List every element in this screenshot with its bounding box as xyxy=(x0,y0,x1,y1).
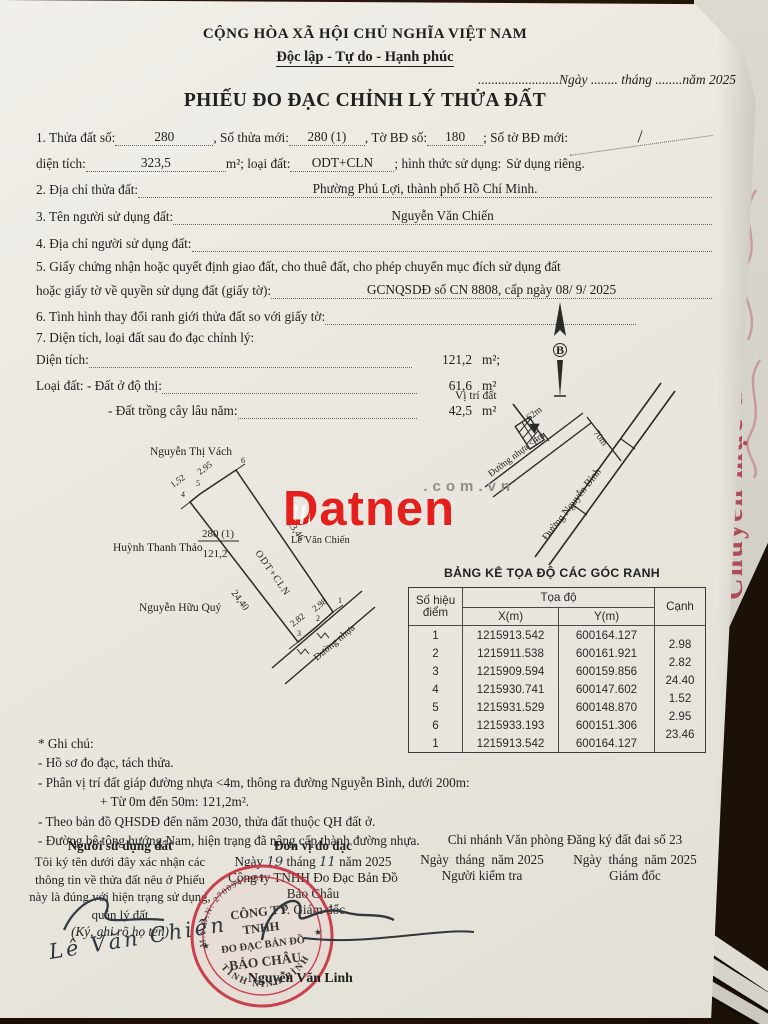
land-user-title: Người sử dụng đất xyxy=(28,838,212,854)
parcel-address-label: 2. Địa chỉ thửa đất: xyxy=(36,182,138,198)
road1-label: Đường nhựa <4m xyxy=(487,430,548,479)
usage-form-value: Sử dụng riêng. xyxy=(501,156,585,172)
map-sheet-value: 180 xyxy=(427,128,483,146)
land-type-label: m²; loại đất: xyxy=(226,156,291,172)
table-row-y: 600164.127 xyxy=(559,626,655,644)
table-row-x: 1215930.741 xyxy=(463,680,559,698)
director-signature xyxy=(246,884,481,974)
neighbor-top: Nguyễn Thị Vách xyxy=(150,445,232,458)
signature-col-inspector: Ngày tháng năm 2025 Người kiểm tra xyxy=(412,852,552,884)
column-header-x: X(m) xyxy=(463,608,559,626)
stamp-signer-name: Nguyễn Văn Linh xyxy=(248,970,353,986)
land-type-value: ODT+CLN xyxy=(290,154,394,172)
parcel-number-value: 280 xyxy=(115,128,213,146)
date-line: ........................Ngày ........ th… xyxy=(478,72,736,88)
national-motto: Độc lập - Tự do - Hạnh phúc xyxy=(0,49,730,66)
area-after-label: Diện tích: xyxy=(36,352,89,368)
table-row-x: 1215913.542 xyxy=(463,734,559,752)
map-sheet-label: , Tờ BĐ số: xyxy=(365,130,427,146)
boundary-change-label: 6. Tình hình thay đổi ranh giới thửa đất… xyxy=(36,309,325,325)
note-line: - Theo bản đồ QHSDĐ đến năm 2030, thửa đ… xyxy=(38,812,470,831)
parcel-number: 280 (1) xyxy=(202,528,234,540)
parcel-number-label: 1. Thửa đất số: xyxy=(36,130,115,146)
table-row-y: 600161.921 xyxy=(559,644,655,662)
new-parcel-label: , Số thửa mới: xyxy=(213,130,289,146)
area-after-dots xyxy=(89,350,412,368)
location-label: Vị trí đất xyxy=(455,389,497,402)
new-map-sheet-label: ; Số tờ BĐ mới: xyxy=(483,130,568,146)
table-row-point: 3 xyxy=(409,662,463,680)
table-row-point: 4 xyxy=(409,680,463,698)
director-date: Ngày tháng năm 2025 xyxy=(560,852,710,868)
field-row-area: diện tích: 323,5 m²; loại đất: ODT+CLN ;… xyxy=(36,154,712,172)
field-row-certificate-2: hoặc giấy tờ về quyền sử dụng đất (giấy … xyxy=(36,281,712,299)
parcel-address-value: Phường Phú Lợi, thành phố Hồ Chí Minh. xyxy=(138,180,712,198)
registry-office-header: Chi nhánh Văn phòng Đăng ký đất đai số 2… xyxy=(410,832,720,848)
svg-text:B: B xyxy=(556,343,564,357)
new-map-sheet-value: / xyxy=(568,118,713,156)
note-line: + Từ 0m đến 50m: 121,2m². xyxy=(38,792,470,811)
vertex-2: 2 xyxy=(316,614,320,623)
edge-length: 24.40 xyxy=(665,671,694,689)
vertex-4: 4 xyxy=(181,490,185,499)
perennial-land-dots xyxy=(238,401,417,419)
usage-form-label: ; hình thức sử dụng: xyxy=(394,156,501,172)
edge-top-1: 1,52 xyxy=(168,472,187,489)
note-line: - Phân vị trí đất giáp đường nhựa <4m, t… xyxy=(38,773,470,792)
table-row-x: 1215933.193 xyxy=(463,716,559,734)
inspector-date: Ngày tháng năm 2025 xyxy=(412,852,552,868)
table-row-x: 1215913.542 xyxy=(463,626,559,644)
parcel-area: 121,2 xyxy=(203,548,228,560)
certificate-label-line2: hoặc giấy tờ về quyền sử dụng đất (giấy … xyxy=(36,283,271,299)
signature-col-director: Ngày tháng năm 2025 Giám đốc xyxy=(560,852,710,884)
coordinate-table: Số hiệuđiểm Tọa độ Cạnh X(m) Y(m) 1 1215… xyxy=(408,587,706,753)
certificate-label-line1: 5. Giấy chứng nhận hoặc quyết định giao … xyxy=(36,259,561,275)
document-title: PHIẾU ĐO ĐẠC CHỈNH LÝ THỬA ĐẤT xyxy=(0,90,730,112)
dim-62m: 62m xyxy=(525,405,545,424)
field-row-after-measure: 7. Diện tích, loại đất sau đo đạc chỉnh … xyxy=(36,330,712,346)
field-row-owner-address: 4. Địa chỉ người sử dụng đất: xyxy=(36,234,712,252)
area-after-value: 121,2 xyxy=(412,352,472,368)
edge-bottom-1: 2,82 xyxy=(288,611,307,629)
vertex-6: 6 xyxy=(241,456,245,465)
coordinate-table-title: BẢNG KÊ TỌA ĐỘ CÁC GÓC RANH xyxy=(404,566,700,580)
notes-block: * Ghi chú: - Hồ sơ đo đạc, tách thửa. - … xyxy=(38,734,470,850)
inspector-role: Người kiểm tra xyxy=(412,868,552,884)
table-row-x: 1215931.529 xyxy=(463,698,559,716)
column-header-edge: Cạnh xyxy=(655,588,705,626)
national-title: CỘNG HÒA XÃ HỘI CHỦ NGHĨA VIỆT NAM xyxy=(0,26,730,43)
urban-land-label: Loại đất: - Đất ở độ thị: xyxy=(36,378,162,394)
field-row-address: 2. Địa chỉ thửa đất: Phường Phú Lợi, thà… xyxy=(36,180,712,198)
edge-length: 2.95 xyxy=(669,707,692,725)
survey-unit-title: Đơn vị đo đạc xyxy=(208,838,418,854)
owner-name-value: Nguyễn Văn Chiến xyxy=(173,207,712,225)
table-row-y: 600164.127 xyxy=(559,734,655,752)
new-parcel-value: 280 (1) xyxy=(289,128,365,146)
neighbor-bottom: Nguyễn Hữu Quý xyxy=(139,601,222,614)
edge-top-2: 2,95 xyxy=(195,459,214,477)
table-row-point: 1 xyxy=(409,626,463,644)
parcel-sketch: Nguyễn Thị Vách Huỳnh Thanh Thảo Nguyễn … xyxy=(35,435,425,701)
dim-70m: 70m xyxy=(591,429,610,449)
area-label: diện tích: xyxy=(36,156,86,172)
note-line: - Hồ sơ đo đạc, tách thửa. xyxy=(38,753,470,772)
field-row-owner: 3. Tên người sử dụng đất: Nguyễn Văn Chi… xyxy=(36,207,712,225)
boundary-change-empty xyxy=(325,307,636,325)
neighbor-left: Huỳnh Thanh Thảo xyxy=(113,542,203,554)
notes-title: * Ghi chú: xyxy=(38,734,470,753)
vertex-1: 1 xyxy=(338,596,342,605)
area-value: 323,5 xyxy=(86,154,226,172)
edge-bottom-2: 2,98 xyxy=(310,596,329,614)
edge-length: 2.82 xyxy=(669,653,692,671)
owner-address-label: 4. Địa chỉ người sử dụng đất: xyxy=(36,236,192,252)
table-row-point: 6 xyxy=(409,716,463,734)
owner-name-label: 3. Tên người sử dụng đất: xyxy=(36,209,173,225)
vertex-5: 5 xyxy=(196,479,200,488)
table-row-y: 600159.856 xyxy=(559,662,655,680)
watermark-logo-bars xyxy=(295,505,310,524)
table-row-point: 5 xyxy=(409,698,463,716)
urban-land-dots xyxy=(162,376,417,394)
area-after-unit: m²; xyxy=(472,352,522,368)
field-row-area-after: Diện tích: 121,2 m²; xyxy=(36,350,522,368)
watermark: .com.vn Datnen xyxy=(283,478,533,544)
column-header-y: Y(m) xyxy=(559,608,655,626)
side-left: 24,40 xyxy=(229,588,251,613)
table-row-x: 1215911.538 xyxy=(463,644,559,662)
edge-length: 2.98 xyxy=(669,635,692,653)
edge-length: 1.52 xyxy=(669,689,692,707)
vertex-3: 3 xyxy=(297,629,301,638)
column-header-coord: Tọa độ xyxy=(463,588,655,608)
certificate-value: GCNQSDĐ số CN 8808, cấp ngày 08/ 9/ 2025 xyxy=(271,281,712,299)
column-header-point: Số hiệuđiểm xyxy=(409,588,463,626)
field-row-parcel: 1. Thửa đất số: 280 , Số thửa mới: 280 (… xyxy=(36,128,712,146)
document-sheet: CỘNG HÒA XÃ HỘI CHỦ NGHĨA VIỆT NAM Độc l… xyxy=(0,0,768,1018)
edge-length: 23.46 xyxy=(665,725,694,743)
table-row-point: 2 xyxy=(409,644,463,662)
director-role: Giám đốc xyxy=(560,868,710,884)
field-row-certificate-1: 5. Giấy chứng nhận hoặc quyết định giao … xyxy=(36,259,712,275)
after-measure-label: 7. Diện tích, loại đất sau đo đạc chỉnh … xyxy=(36,330,254,346)
table-row-x: 1215909.594 xyxy=(463,662,559,680)
owner-address-empty xyxy=(192,234,712,252)
table-row-y: 600148.870 xyxy=(559,698,655,716)
perennial-land-label: - Đất trồng cây lâu năm: xyxy=(108,403,238,419)
stamp-star-left: ★ xyxy=(201,940,210,951)
table-row-y: 600151.306 xyxy=(559,716,655,734)
table-row-y: 600147.602 xyxy=(559,680,655,698)
photo-of-document: Chuyển mục đích CỘNG HÒA XÃ HỘI CHỦ NGHĨ… xyxy=(0,0,768,1024)
edge-length-column: 2.98 2.82 24.40 1.52 2.95 23.46 xyxy=(655,626,705,752)
